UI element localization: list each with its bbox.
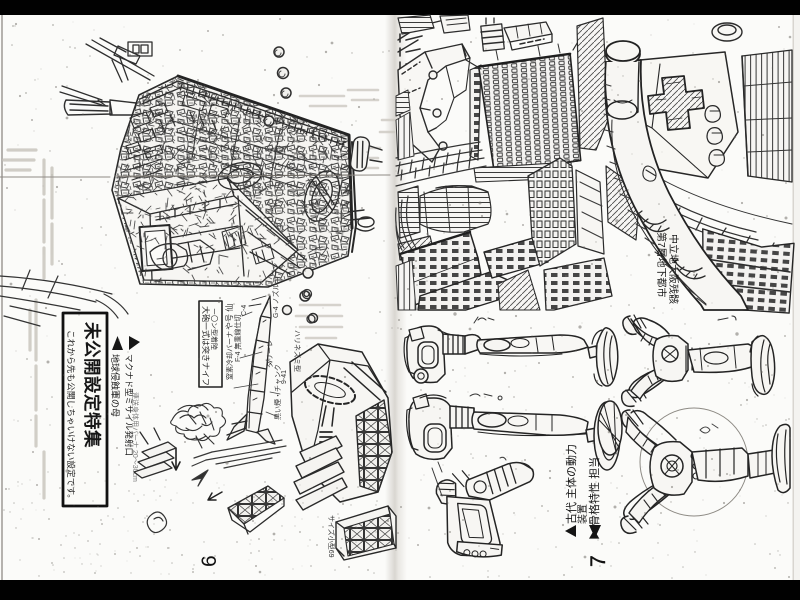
svg-text:連送身体用バーナ 20〜30cm: 連送身体用バーナ 20〜30cm	[131, 392, 140, 482]
svg-text:や号 仙: や号 仙	[224, 304, 234, 330]
svg-text:装置: 装置	[576, 504, 589, 524]
svg-text:6: 6	[198, 555, 221, 567]
svg-text:黒い煙・チャンク: 黒い煙・チャンク	[273, 364, 282, 420]
svg-text:9-41: 9-41	[281, 370, 288, 384]
svg-text:▲ 古代 主体の動力: ▲ 古代 主体の動力	[564, 444, 578, 538]
svg-text:地球侵蝕軍の母: 地球侵蝕軍の母	[110, 354, 121, 417]
svg-text:中立地大阪残骸: 中立地大阪残骸	[667, 234, 680, 304]
svg-text:ー〇ン型着陸: ー〇ン型着陸	[210, 308, 219, 350]
svg-text:G-4 ノズルコーン: G-4 ノズルコーン	[271, 263, 280, 318]
svg-text:7: 7	[587, 555, 610, 567]
svg-text:タリーレ: タリーレ	[265, 340, 274, 368]
svg-text:第7層地下都市: 第7層地下都市	[655, 232, 668, 298]
svg-text:F-4 無重線仕切: F-4 無重線仕切	[233, 315, 242, 362]
svg-text:未公開設定特集: 未公開設定特集	[82, 322, 102, 448]
svg-text:大砲一式は突きナイフ: 大砲一式は突きナイフ	[201, 306, 211, 386]
svg-text:窒素冷却バーナ: 窒素冷却バーナ	[225, 331, 234, 380]
svg-text:サイズ小型69: サイズ小型69	[327, 515, 336, 558]
svg-text:ハリネズミ型: ハリネズミ型	[293, 330, 302, 372]
svg-text:これから先も公開しちゃいけない設定です。: これから先も公開しちゃいけない設定です。	[66, 330, 77, 503]
